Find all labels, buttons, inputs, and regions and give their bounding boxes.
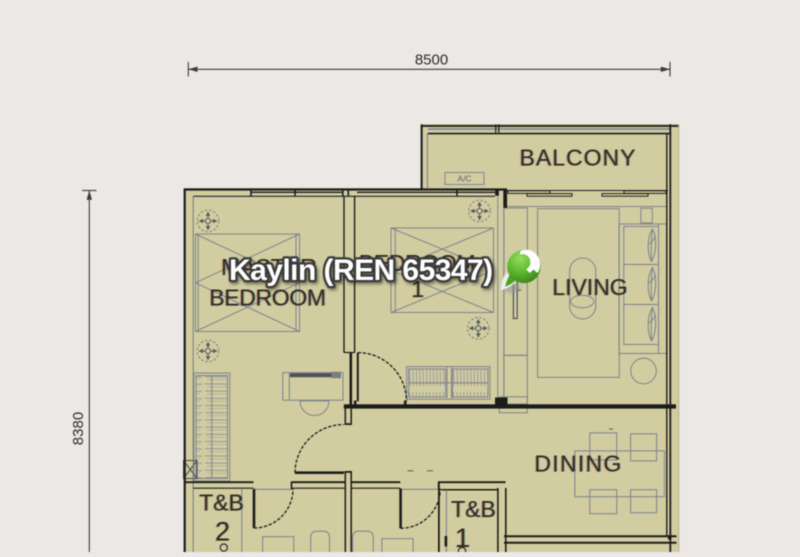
svg-text:T&B: T&B [451, 496, 496, 522]
svg-text:8380: 8380 [70, 412, 87, 445]
svg-text:2: 2 [215, 517, 230, 547]
svg-text:T&B: T&B [199, 490, 244, 516]
svg-text:Kaylin (REN 65347): Kaylin (REN 65347) [229, 254, 493, 287]
svg-text:BEDROOM: BEDROOM [209, 285, 325, 311]
svg-text:A/C: A/C [457, 174, 471, 184]
svg-text:DINING: DINING [534, 451, 622, 477]
svg-text:BALCONY: BALCONY [520, 145, 637, 171]
svg-text:8500: 8500 [415, 52, 448, 69]
svg-text:LIVING: LIVING [552, 274, 627, 300]
